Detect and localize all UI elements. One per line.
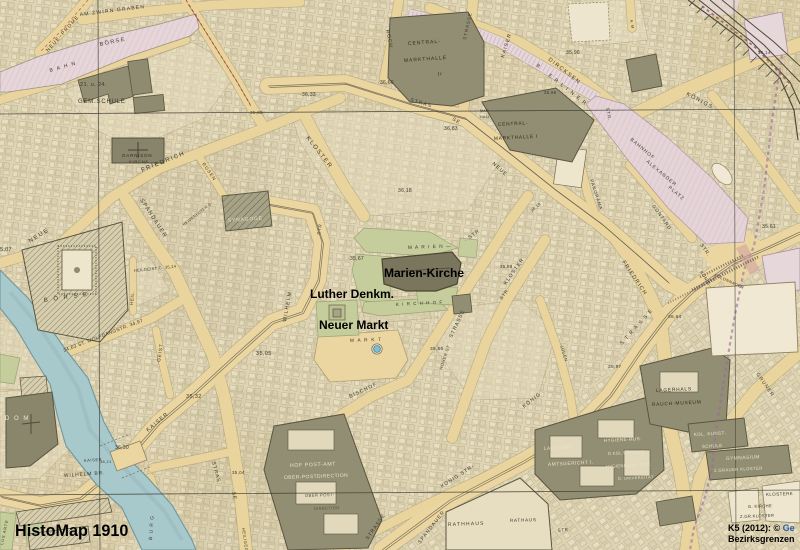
- svg-text:35,98: 35,98: [500, 264, 513, 269]
- svg-text:Bezirksgrenzen: Bezirksgrenzen: [728, 534, 795, 544]
- svg-text:K5 (2012): © Ge: K5 (2012): © Ge: [728, 523, 795, 533]
- svg-text:GEM.SCHULE: GEM.SCHULE: [78, 99, 126, 105]
- svg-text:RATHAUS: RATHAUS: [510, 517, 537, 523]
- svg-text:36,64: 36,64: [668, 314, 682, 320]
- svg-text:36,30: 36,30: [115, 445, 129, 451]
- svg-text:·36,66: ·36,66: [378, 80, 394, 86]
- svg-text:KIRCHE: KIRCHE: [129, 159, 149, 164]
- svg-text:·35,67: ·35,67: [348, 256, 364, 262]
- svg-text:Luther Denkm.: Luther Denkm.: [310, 287, 394, 301]
- svg-text:Neuer Markt: Neuer Markt: [319, 318, 388, 332]
- svg-text:35,97: 35,97: [608, 364, 622, 370]
- svg-text:M A R K T: M A R K T: [350, 337, 383, 344]
- svg-text:35,32: 35,32: [186, 394, 202, 400]
- svg-text:36,18: 36,18: [398, 188, 412, 194]
- svg-text:35,05: 35,05: [256, 351, 272, 357]
- svg-text:GARNISON: GARNISON: [122, 153, 152, 158]
- svg-text:HALL: HALL: [480, 115, 490, 119]
- svg-text:35,04: 35,04: [232, 470, 245, 475]
- svg-text:35,61: 35,61: [762, 224, 776, 230]
- svg-text:35,96: 35,96: [544, 90, 557, 95]
- svg-text:OBER POST-: OBER POST-: [305, 492, 335, 498]
- svg-text:DIRECTION: DIRECTION: [314, 505, 340, 511]
- svg-text:G. KIRCHE: G. KIRCHE: [748, 503, 772, 509]
- svg-text:21. u. 24.: 21. u. 24.: [80, 82, 107, 88]
- svg-text:36,83: 36,83: [444, 126, 458, 132]
- svg-text:35,56: 35,56: [430, 346, 444, 352]
- svg-text:36,14: 36,14: [758, 50, 771, 55]
- svg-text:Marien-Kirche: Marien-Kirche: [384, 266, 464, 280]
- svg-text:HistoMap 1910: HistoMap 1910: [15, 522, 128, 540]
- svg-text:35,96: 35,96: [566, 50, 580, 56]
- svg-text:RATHHAUS: RATHHAUS: [448, 521, 485, 528]
- svg-text:5,07: 5,07: [0, 247, 12, 253]
- svg-text:·36,33: ·36,33: [300, 92, 316, 98]
- svg-text:D O M: D O M: [5, 416, 30, 422]
- svg-text:36,21: 36,21: [100, 459, 112, 464]
- svg-text:35,85: 35,85: [250, 110, 263, 115]
- svg-text:I²: I²: [438, 72, 442, 78]
- svg-text:KLOSTERK: KLOSTERK: [766, 491, 793, 497]
- svg-text:MAR: MAR: [480, 109, 489, 113]
